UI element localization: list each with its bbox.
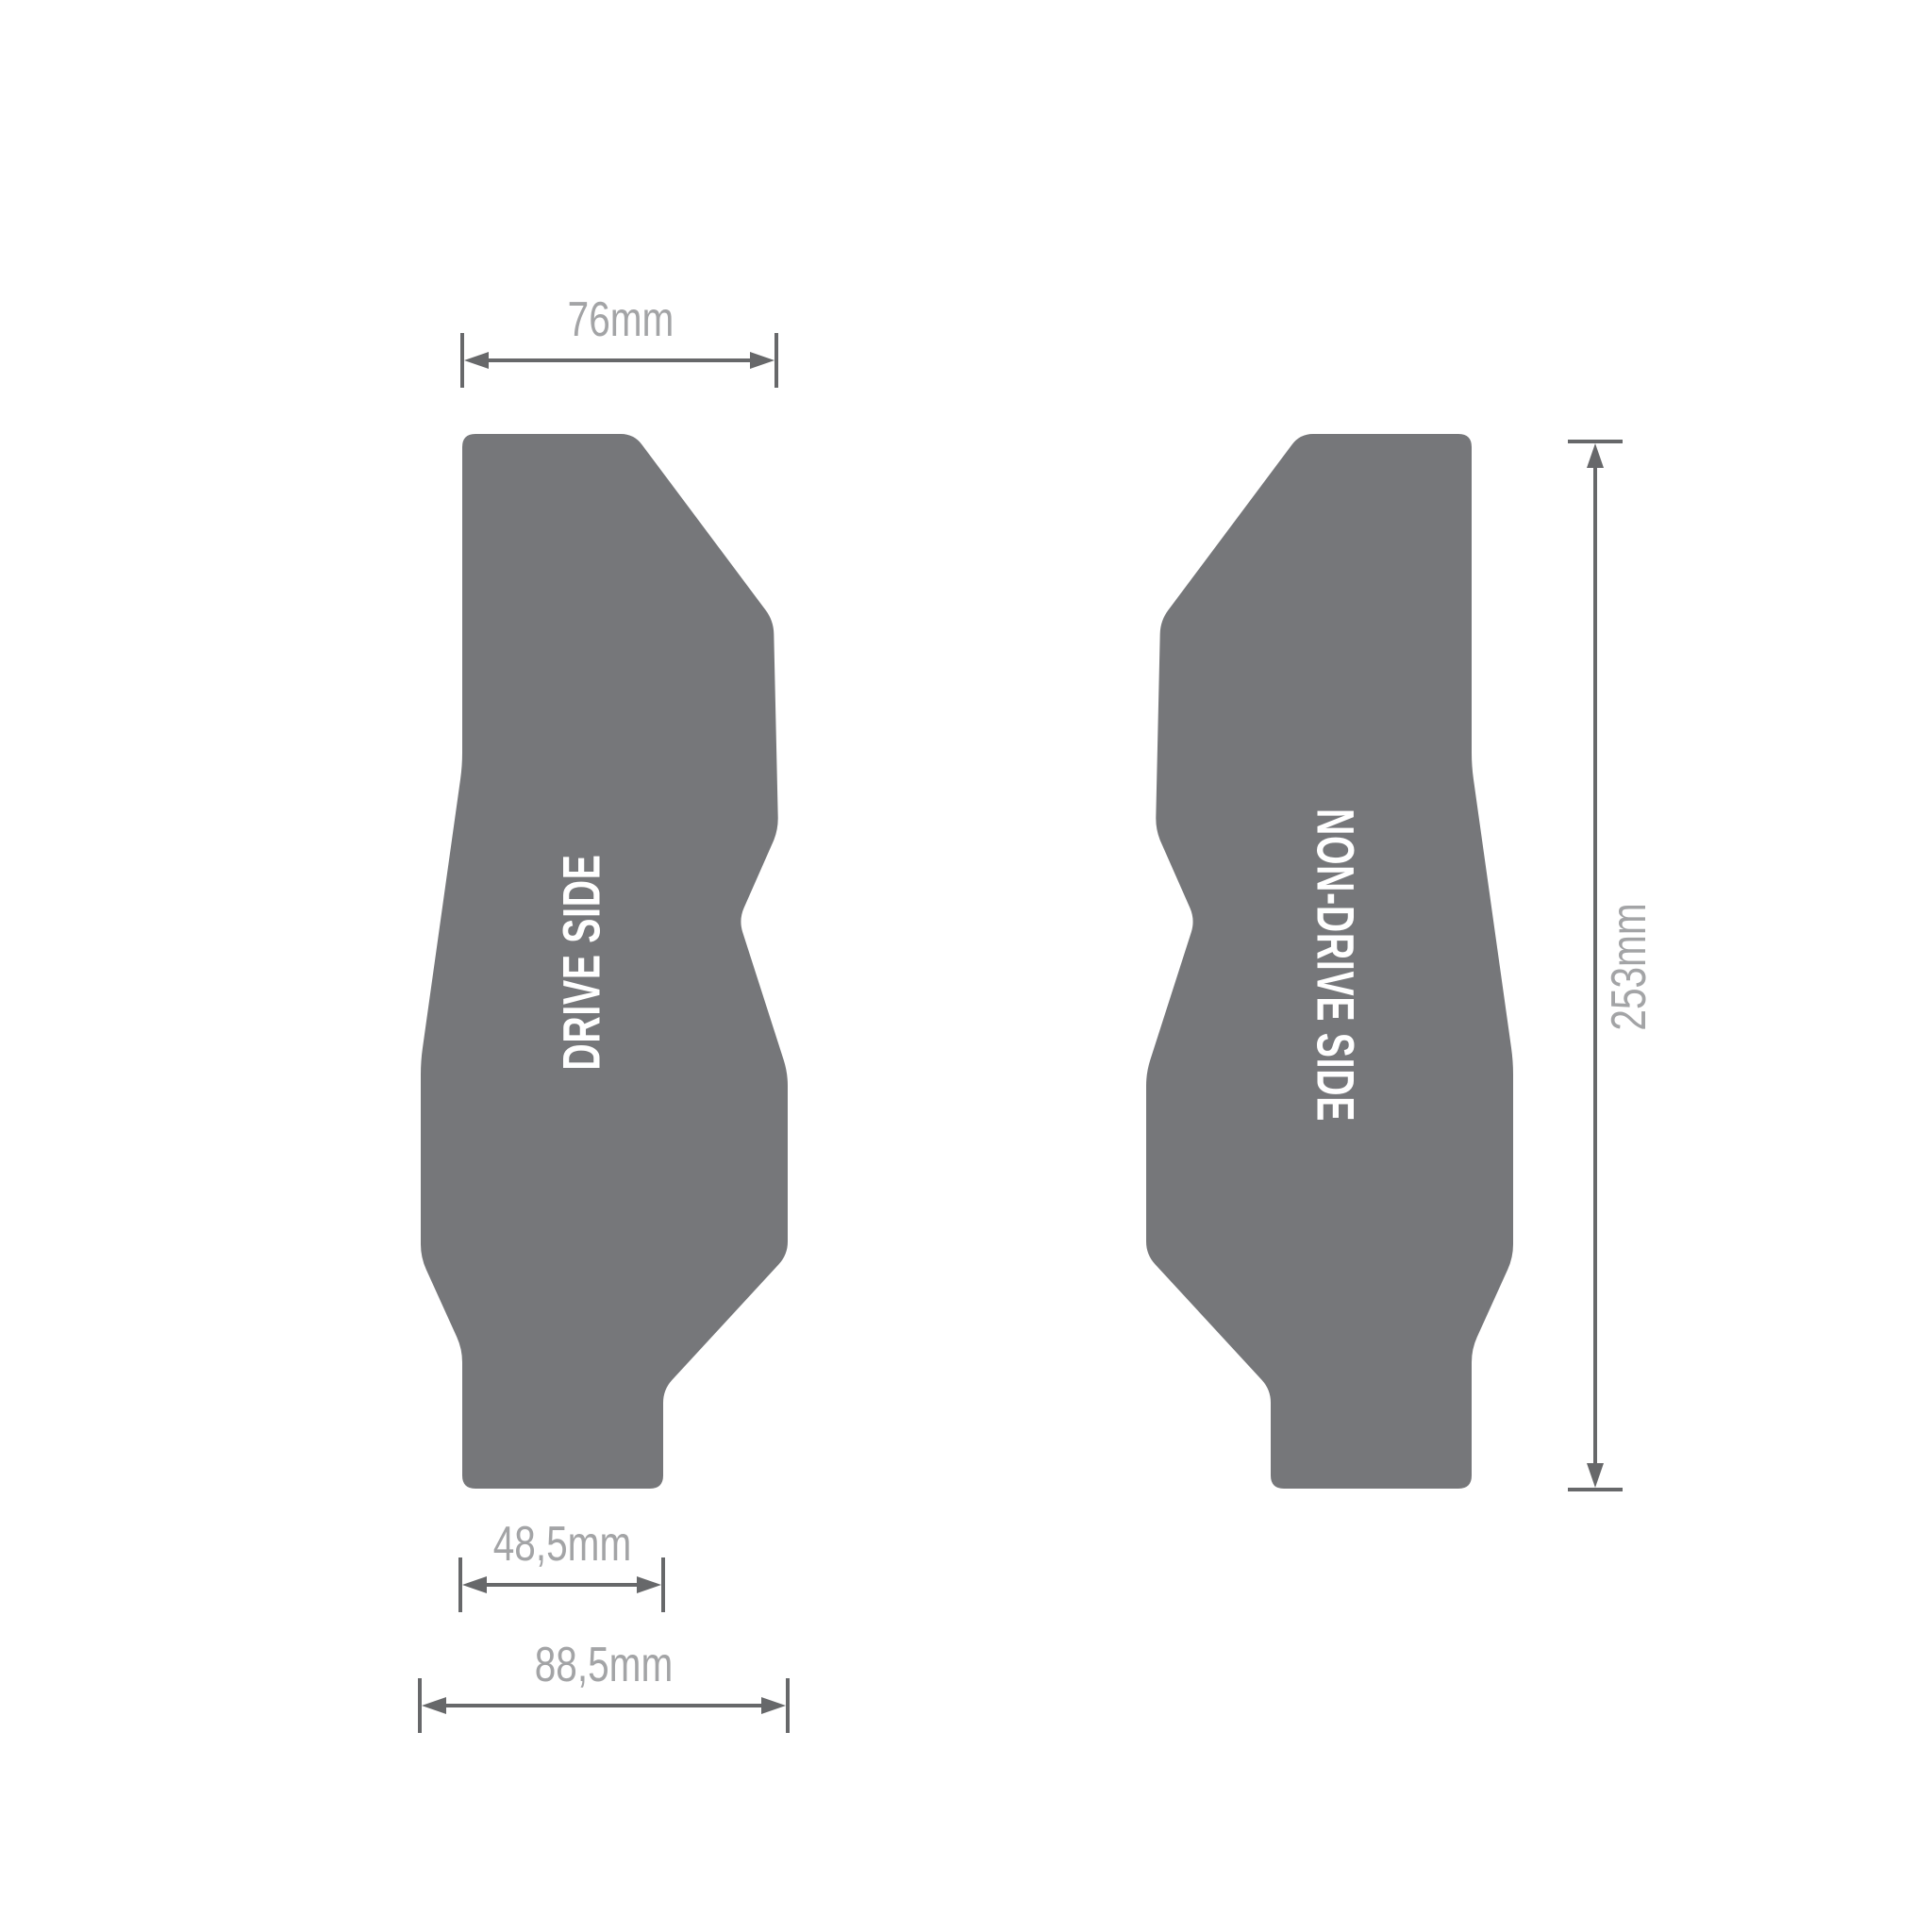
arrow-left-icon — [464, 352, 489, 369]
dimension-stem-width-label: 48,5mm — [493, 1516, 632, 1571]
non-drive-side-label: NON-DRIVE SIDE — [1306, 808, 1365, 1122]
technical-diagram: DRIVE SIDENON-DRIVE SIDE76mm48,5mm88,5mm… — [0, 0, 1932, 1932]
dimension-height-label: 253mm — [1601, 903, 1656, 1030]
dimension-lower-width: 88,5mm — [420, 1637, 788, 1733]
dimension-top-width-label: 76mm — [568, 291, 675, 346]
arrow-right-icon — [761, 1697, 786, 1714]
arrow-left-icon — [422, 1697, 446, 1714]
arrow-up-icon — [1587, 443, 1604, 468]
dimension-stem-width: 48,5mm — [460, 1516, 663, 1612]
non-drive-side-group: NON-DRIVE SIDE — [1146, 434, 1513, 1489]
arrow-left-icon — [462, 1576, 487, 1593]
dimension-lower-width-label: 88,5mm — [535, 1637, 674, 1691]
arrow-right-icon — [637, 1576, 661, 1593]
arrow-right-icon — [750, 352, 774, 369]
dimension-top-width: 76mm — [462, 291, 776, 388]
dimension-height: 253mm — [1568, 441, 1656, 1490]
drive-side-group: DRIVE SIDE — [421, 434, 788, 1489]
drive-side-label: DRIVE SIDE — [553, 854, 612, 1070]
arrow-down-icon — [1587, 1463, 1604, 1488]
